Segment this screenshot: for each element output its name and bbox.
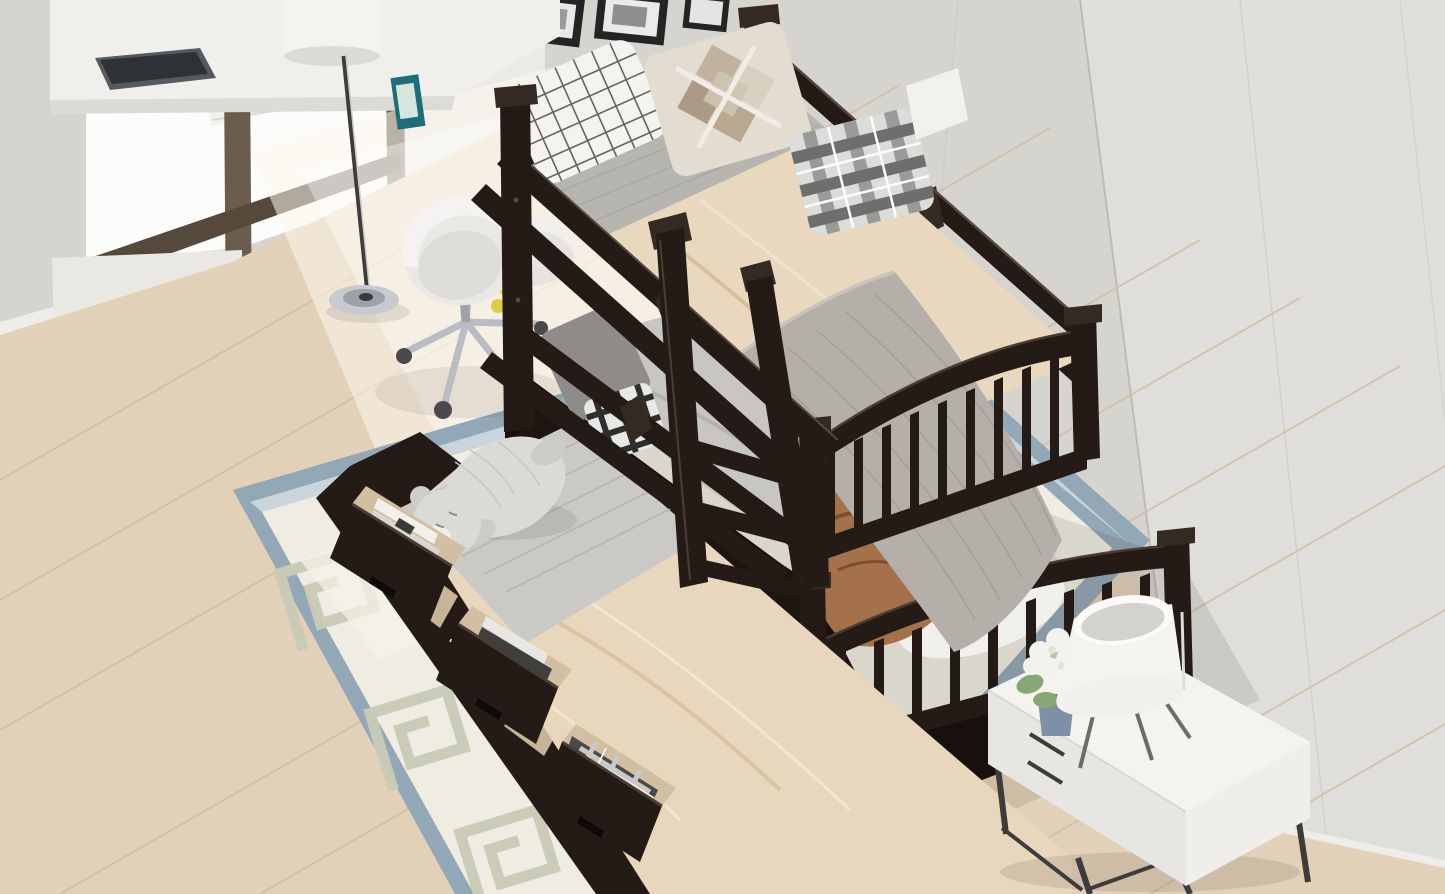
- bedroom-photo: [0, 0, 1445, 894]
- top-foot-post-far: [1070, 312, 1100, 462]
